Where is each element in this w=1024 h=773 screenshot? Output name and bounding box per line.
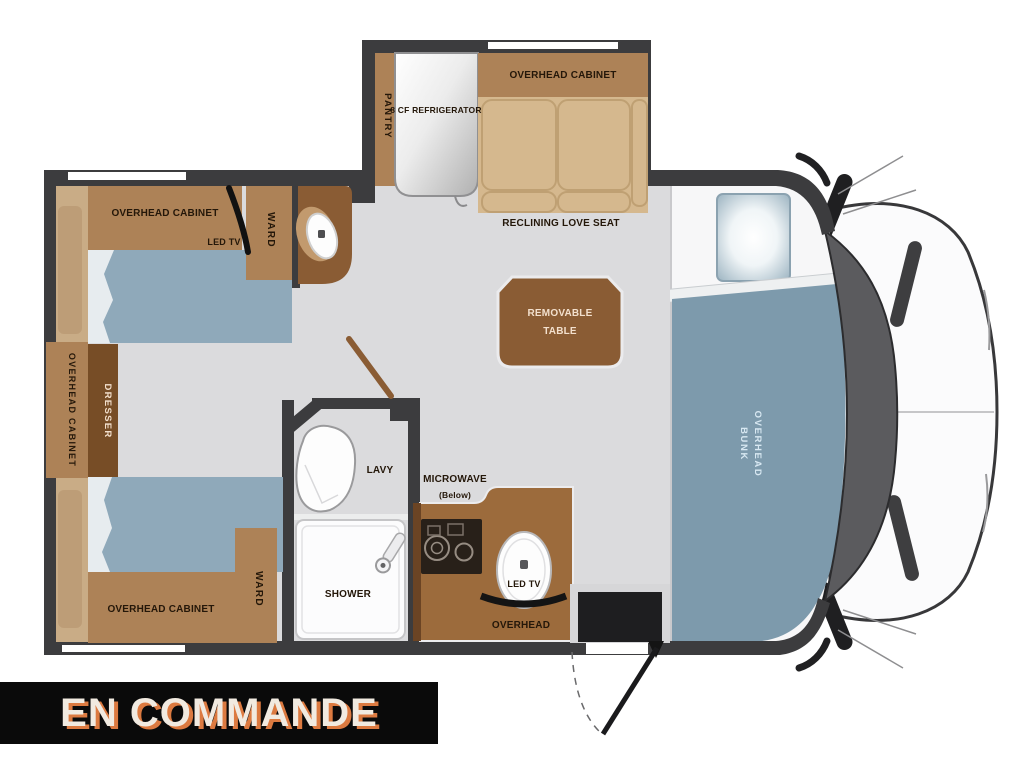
love-seat-footpad-right	[558, 192, 630, 212]
wall-bath-left	[282, 400, 294, 641]
skylight	[717, 194, 790, 281]
window-slideout	[488, 42, 618, 49]
cooktop	[421, 519, 482, 574]
reclining-love-seat-label: RECLINING LOVE SEAT	[502, 218, 620, 229]
ward-bottom-label: WARD	[253, 571, 264, 607]
love-seat-footpad-left	[482, 192, 556, 212]
bunk-label-line1: OVERHEAD	[752, 411, 763, 478]
entry-door	[603, 648, 657, 734]
window-top-left	[68, 172, 186, 180]
overhead-cabinet-top-left-label: OVERHEAD CABINET	[111, 208, 218, 219]
toilet-flush-icon	[318, 230, 325, 238]
counter-edge	[413, 503, 421, 641]
overhead-cabinet-left	[46, 342, 88, 478]
floor-plan-page: OVERHEAD BUNK	[0, 0, 1024, 768]
overhead-cabinet-left-label: OVERHEAD CABINET	[67, 353, 77, 467]
entry	[570, 584, 670, 734]
window-bottom-left	[62, 645, 185, 652]
love-seat-cushion-left	[482, 100, 556, 190]
kitchen	[413, 487, 573, 641]
lavy-label: LAVY	[367, 465, 394, 476]
wall-bath-top	[312, 398, 392, 409]
bunk-label-line2: BUNK	[738, 427, 749, 461]
pantry-label: PANTRY	[382, 93, 393, 139]
love-seat-armrest	[632, 100, 647, 206]
status-banner: EN COMMANDE	[0, 682, 438, 744]
removable-table	[498, 277, 622, 367]
floor-plan: OVERHEAD BUNK	[0, 0, 1024, 768]
shower-label: SHOWER	[325, 589, 372, 600]
microwave-label-2: (Below)	[439, 490, 471, 500]
door-swing-arc	[572, 652, 602, 734]
shower-pan	[296, 520, 405, 639]
removable-table-label-1: REMOVABLE	[528, 308, 593, 319]
entry-door-gap	[586, 643, 648, 654]
overhead-kitchen-label: OVERHEAD	[492, 620, 550, 631]
dresser-label: DRESSER	[102, 383, 113, 438]
refrigerator	[395, 53, 478, 196]
kitchen-tv-oval	[497, 532, 551, 608]
removable-table-label-2: TABLE	[543, 326, 577, 337]
headboard-cushion-bottom	[58, 490, 82, 628]
refrigerator-label: 8 CF REFRIGERATOR	[390, 105, 481, 115]
love-seat-cushion-right	[558, 100, 630, 190]
led-tv-kitchen-label: LED TV	[507, 579, 540, 589]
microwave-label-1: MICROWAVE	[423, 474, 487, 485]
ward-top-label: WARD	[265, 212, 276, 248]
overhead-cabinet-bottom-label: OVERHEAD CABINET	[107, 604, 214, 615]
kitchen-tv-dot	[520, 560, 528, 569]
led-tv-bedroom-label: LED TV	[207, 237, 240, 247]
wall-slideout-left	[362, 40, 375, 186]
overhead-cabinet-slide-label: OVERHEAD CABINET	[509, 70, 616, 81]
entry-step	[578, 592, 662, 642]
headboard-cushion-top	[58, 206, 82, 334]
